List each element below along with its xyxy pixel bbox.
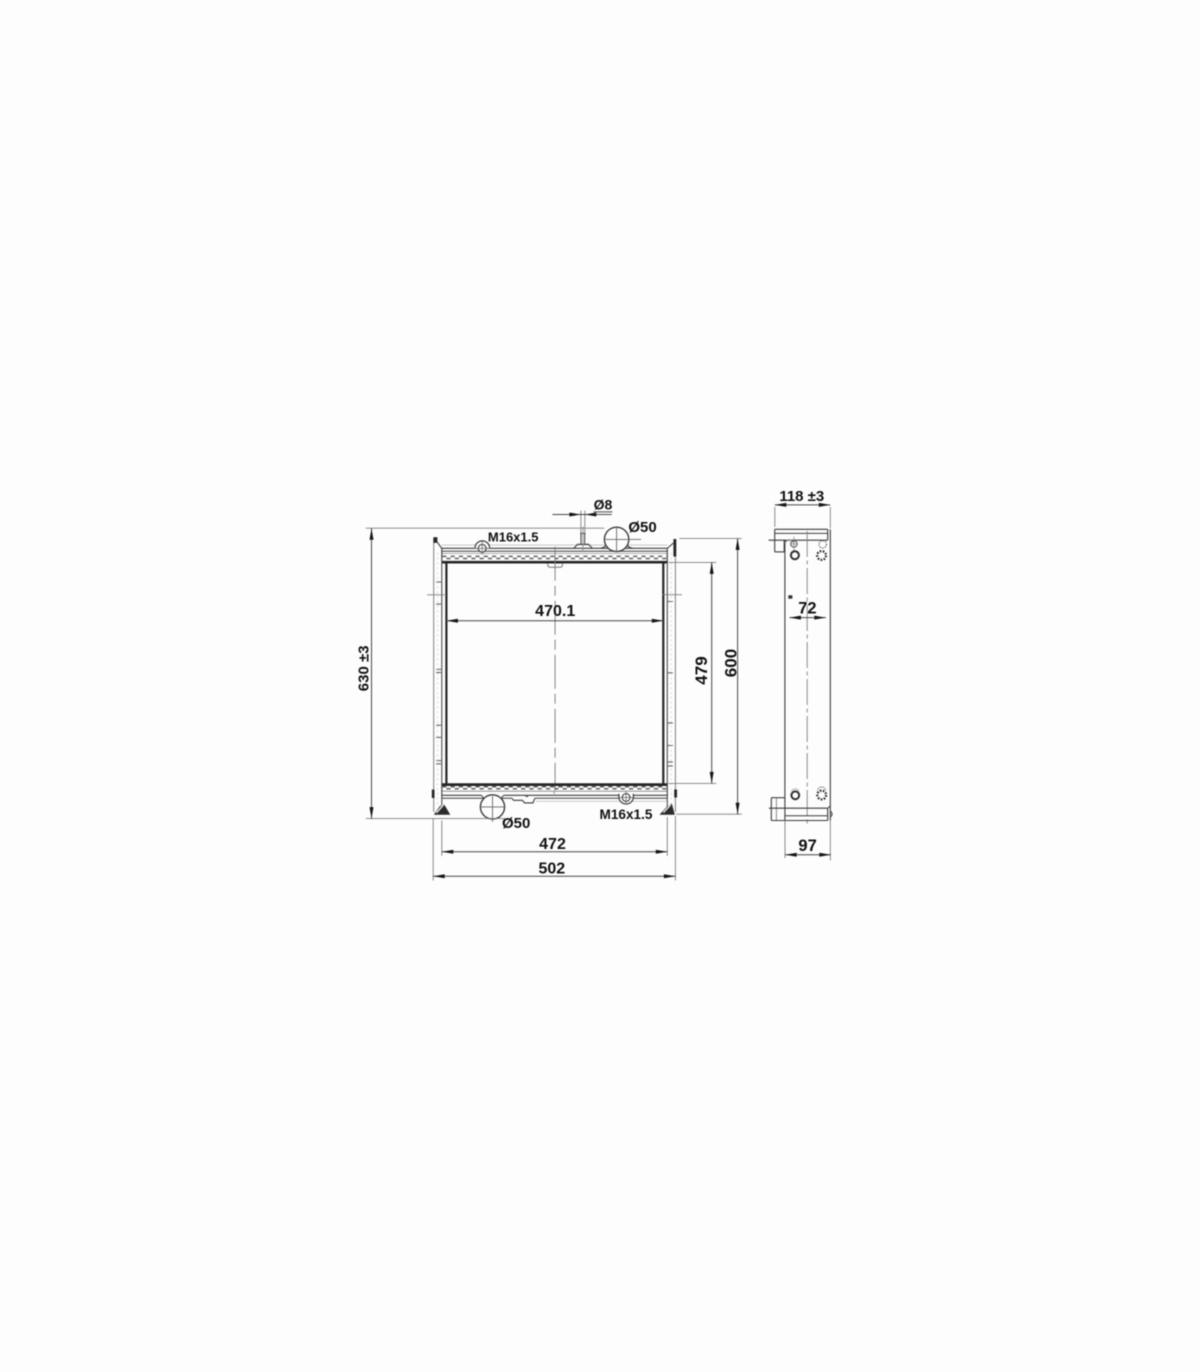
svg-text:72: 72 [798, 599, 816, 617]
svg-text:118 ±3: 118 ±3 [779, 488, 824, 505]
svg-text:600: 600 [722, 649, 741, 677]
svg-text:M16x1.5: M16x1.5 [600, 807, 653, 822]
svg-text:502: 502 [538, 860, 565, 877]
svg-text:M16x1.5: M16x1.5 [488, 529, 539, 544]
svg-text:Ø8: Ø8 [594, 497, 613, 513]
svg-text:470.1: 470.1 [535, 603, 575, 620]
svg-text:479: 479 [692, 656, 711, 684]
svg-text:Ø50: Ø50 [628, 519, 656, 536]
svg-text:Ø50: Ø50 [502, 815, 530, 832]
svg-text:472: 472 [539, 836, 566, 853]
svg-text:97: 97 [798, 837, 816, 855]
svg-text:630 ±3: 630 ±3 [355, 645, 372, 691]
